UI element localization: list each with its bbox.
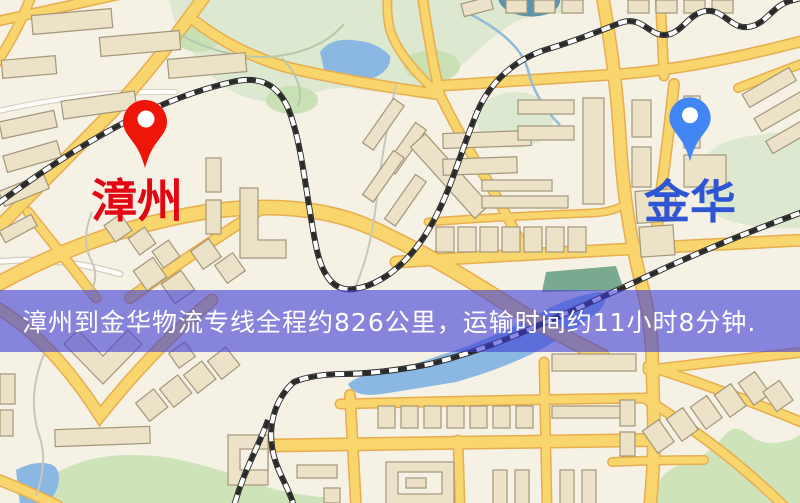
route-info-text: 漳州到金华物流专线全程约826公里，运输时间约11小时8分钟. <box>22 303 756 339</box>
origin-label: 漳州 <box>91 176 183 227</box>
route-info-banner: 漳州到金华物流专线全程约826公里，运输时间约11小时8分钟. <box>0 290 800 352</box>
destination-label: 金华 <box>643 177 736 228</box>
origin-pin-icon <box>123 100 167 168</box>
logistics-map-image: 漳州 金华 漳州到金华物流专线全程约826公里，运输时间约11小时8分钟. <box>0 0 800 503</box>
map-canvas: 漳州 金华 <box>0 0 800 503</box>
destination-pin-icon <box>669 97 710 161</box>
